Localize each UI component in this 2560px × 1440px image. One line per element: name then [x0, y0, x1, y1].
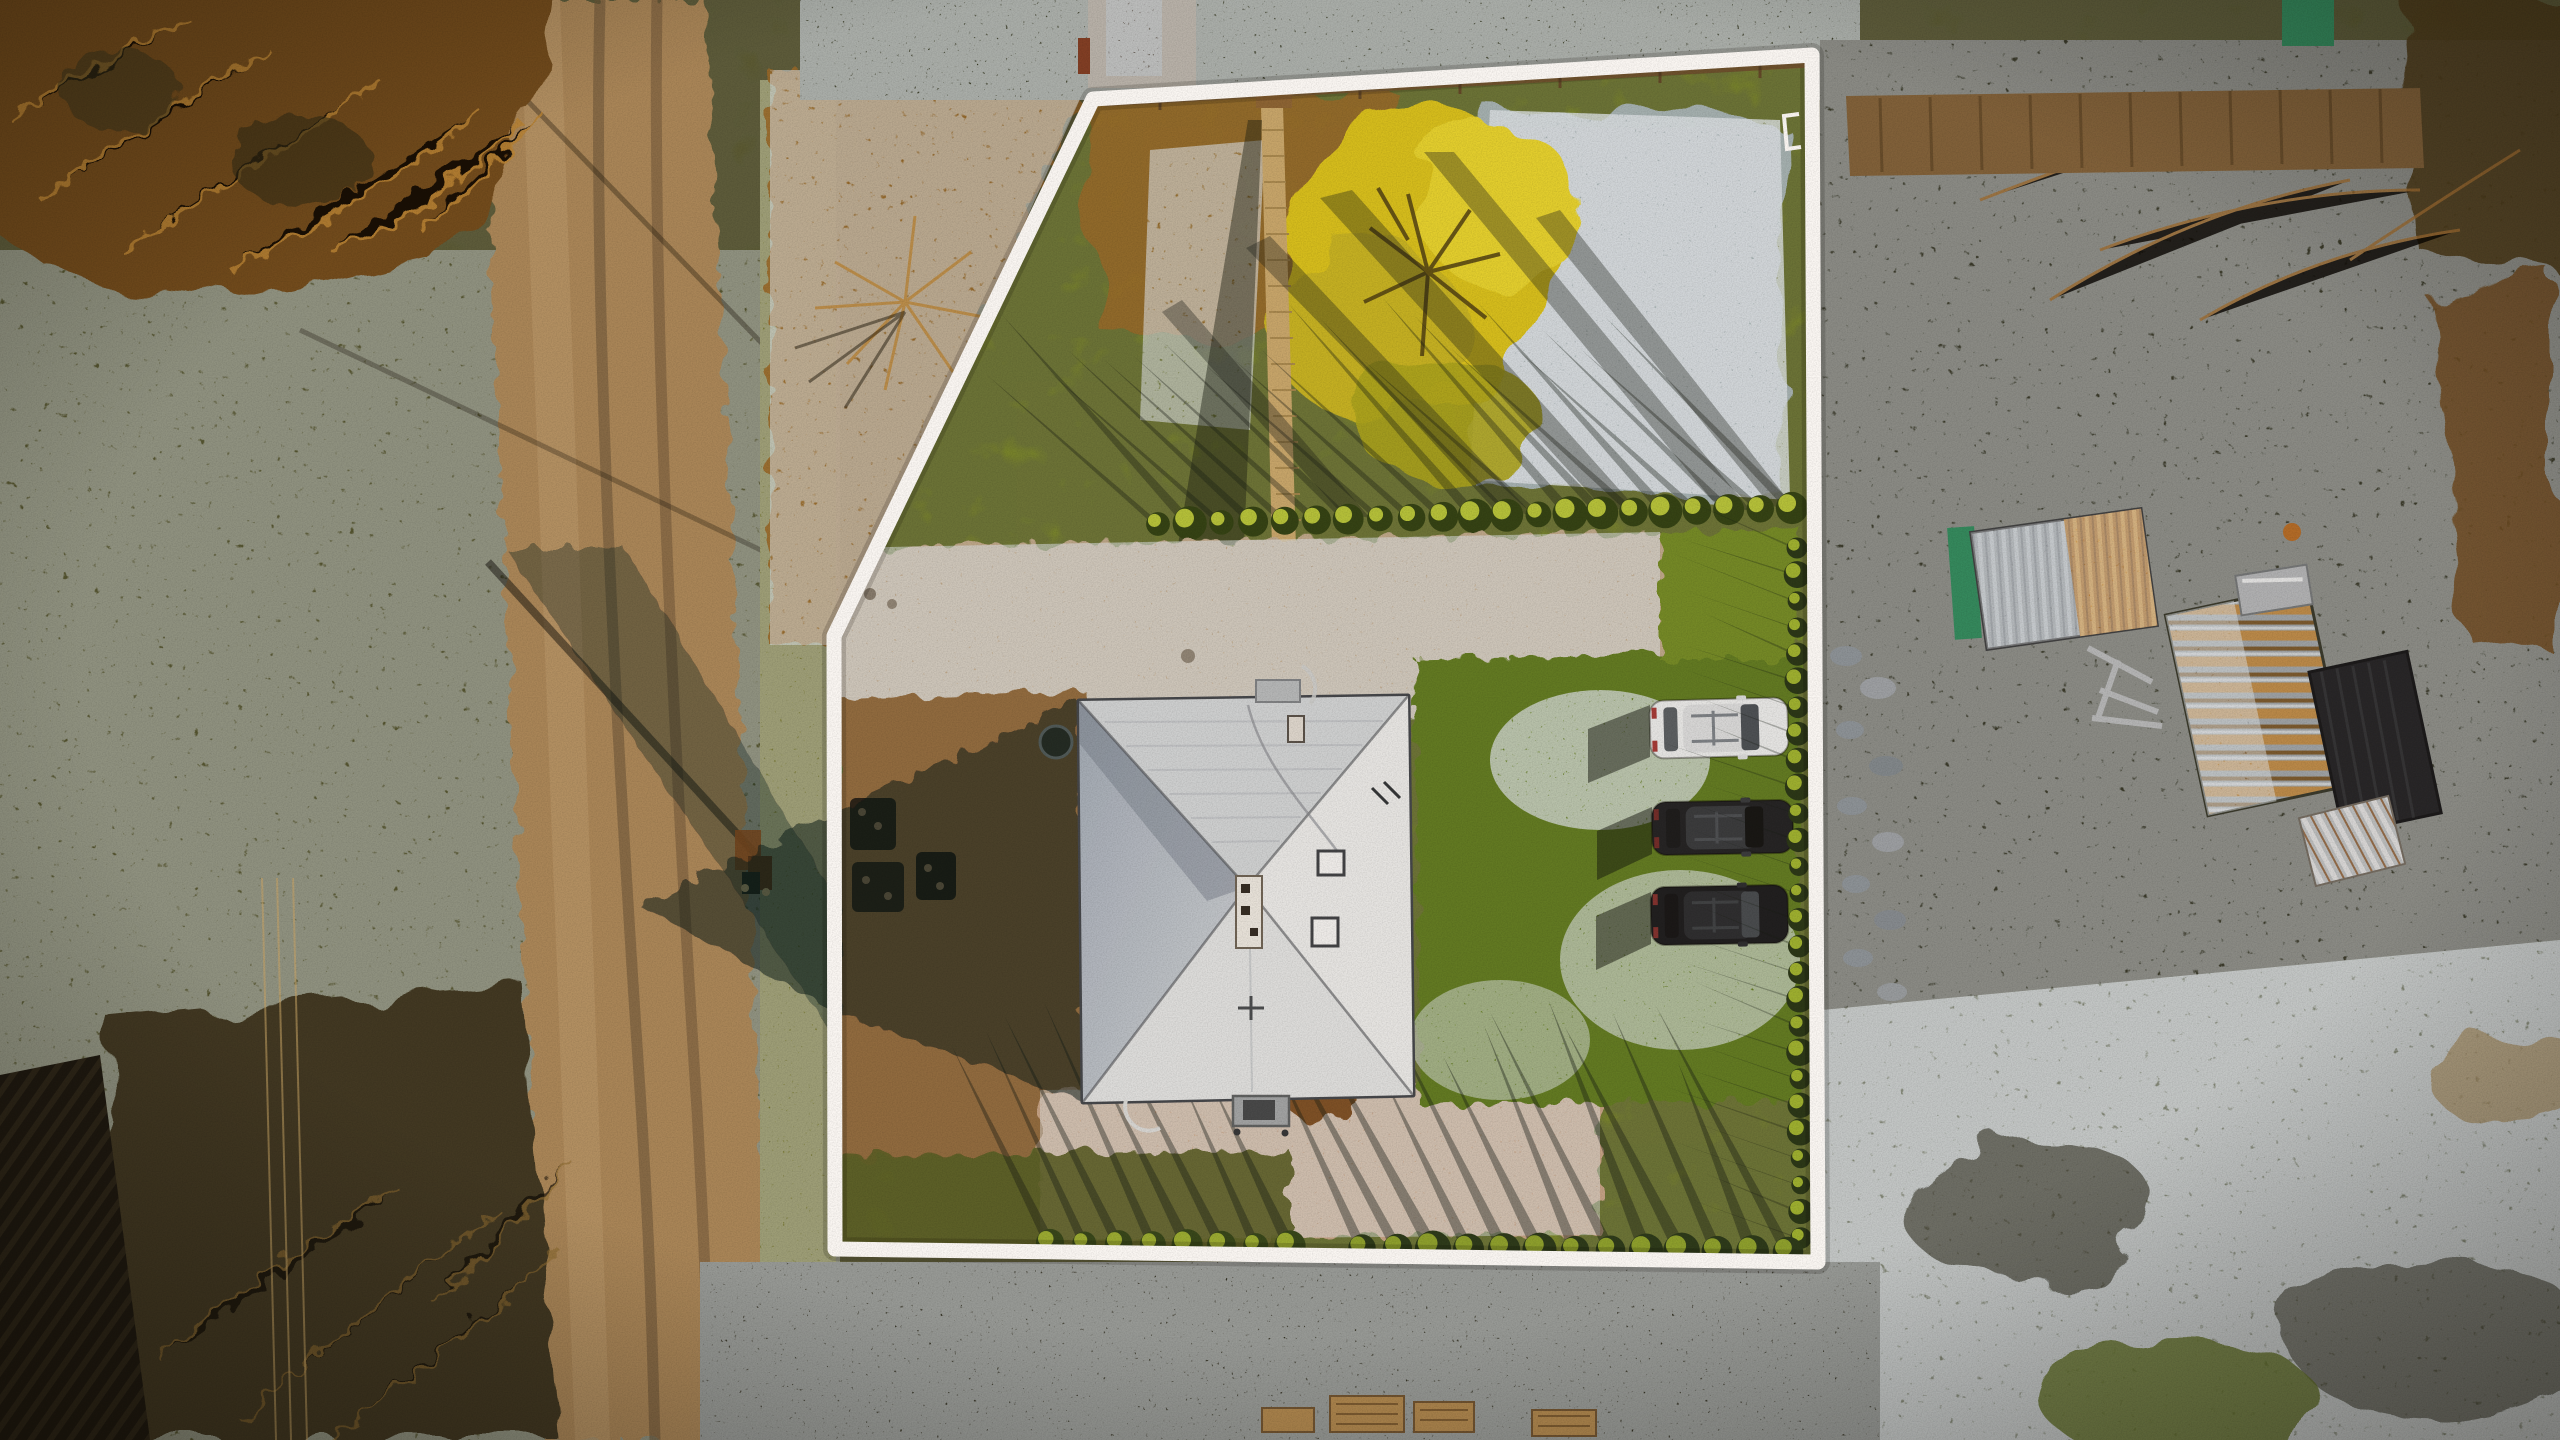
film-grain: [0, 0, 2560, 1440]
aerial-photo: [0, 0, 2560, 1440]
aerial-photo-stage: [0, 0, 2560, 1440]
